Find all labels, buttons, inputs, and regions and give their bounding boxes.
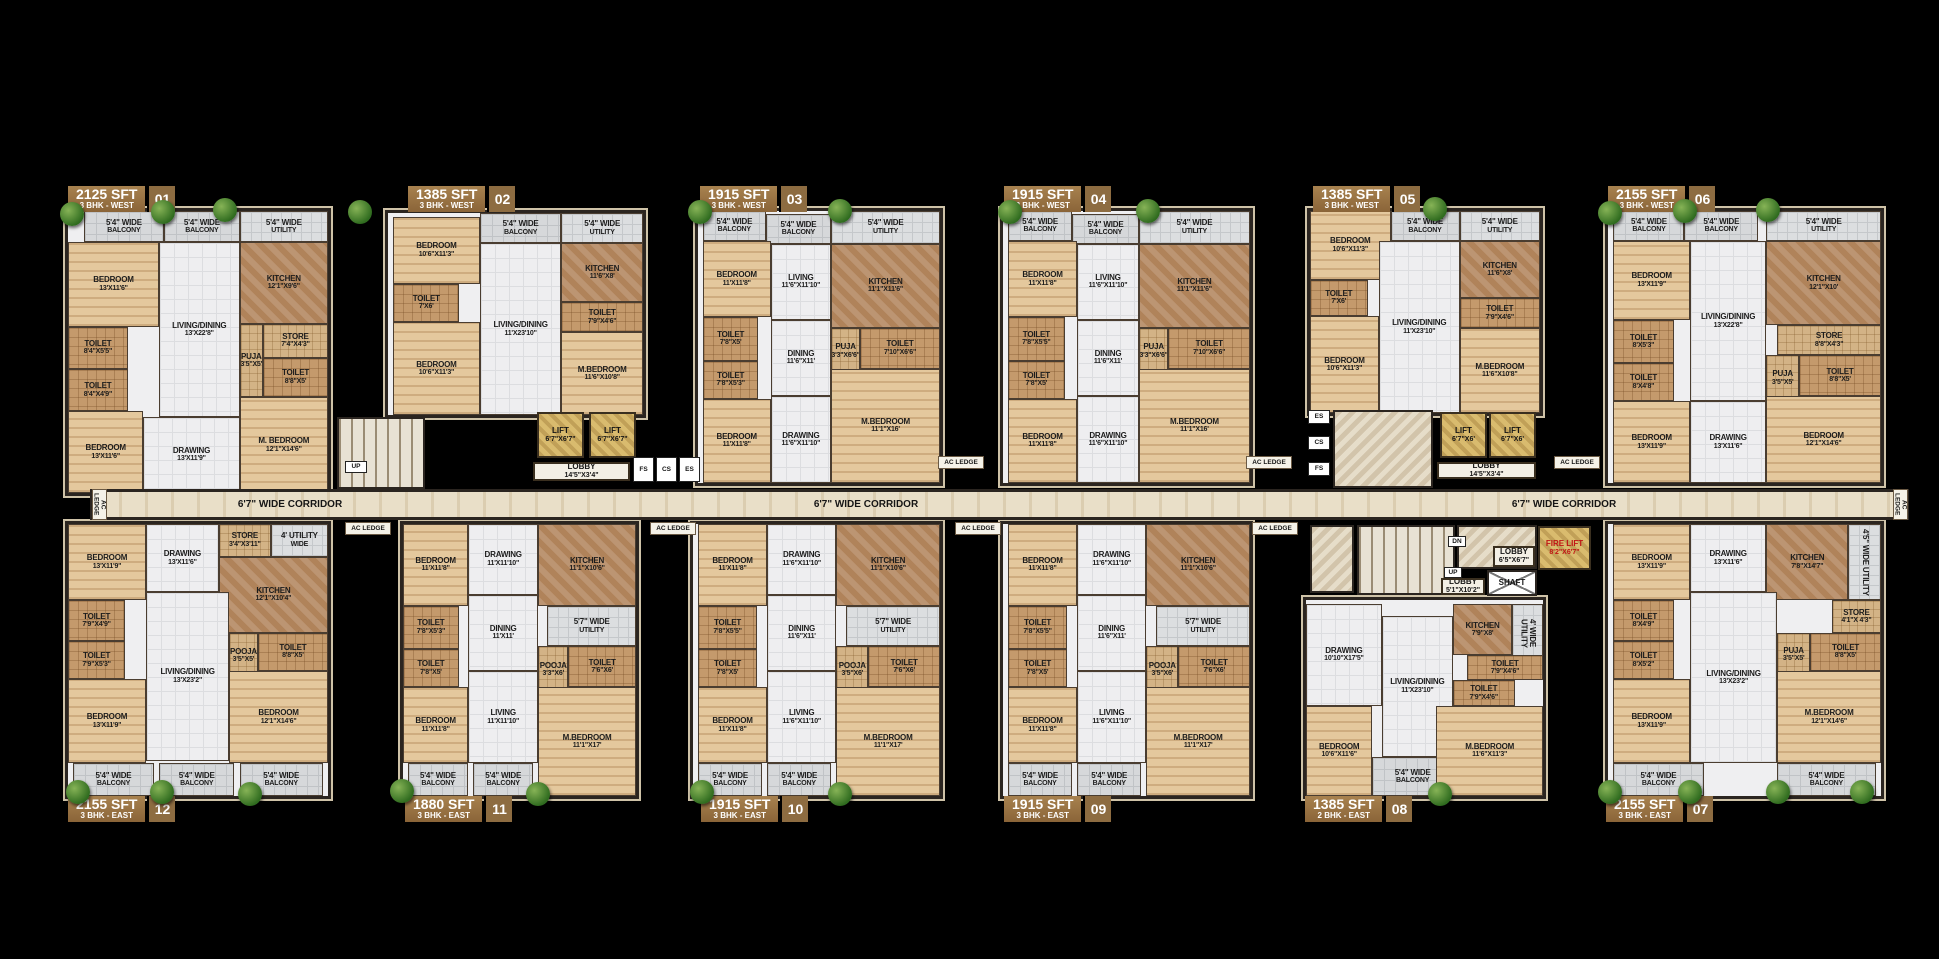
room-wood: BEDROOM13'X11'9" (1613, 679, 1689, 763)
room-dims: 7'8"X5'5" (1023, 628, 1051, 635)
room-toi: TOILET7'10"X6'6" (1168, 328, 1250, 369)
room-label: 5'4" WIDE (106, 219, 142, 227)
room-dims: BALCONY (718, 226, 751, 233)
room-label: TOILET (413, 295, 440, 303)
plant-icon (998, 200, 1022, 224)
room-label: TOILET (84, 340, 111, 348)
room-puj: POOJA3'5"X6' (836, 646, 868, 692)
room-dims: 11'X11'8" (1028, 565, 1056, 572)
up-label-text: UP (1448, 569, 1457, 576)
lobby-label: LOBBY5'1"X10'2" (1441, 578, 1485, 595)
room-utl: 5'4" WIDEUTILITY (1766, 211, 1881, 241)
room-dims: 13'X11'9" (93, 563, 122, 570)
room-wood: M.BEDROOM11'1"X17' (538, 687, 636, 796)
ac-ledge-label: AC LEDGE (1252, 522, 1298, 535)
room-wood: BEDROOM11'X11'8" (403, 687, 468, 763)
room-dims: 7'9"X5'3" (82, 661, 110, 668)
room-dims: 7'8"X5' (1026, 380, 1048, 387)
lift-text: LIFT (1504, 427, 1521, 436)
room-dims: 11'X11'10" (487, 560, 519, 567)
room-label: DRAWING (173, 447, 210, 455)
room-dims: UTILITY (1191, 627, 1216, 634)
room-dims: BALCONY (504, 229, 537, 236)
room-kit: KITCHEN7'8"X14'7" (1766, 524, 1848, 600)
room-label: 5'4" WIDE (781, 772, 817, 780)
corridor-label: 6'7" WIDE CORRIDOR (1489, 496, 1639, 512)
room-live: LIVING11'X11'10" (468, 671, 538, 763)
room-dims: 11'6"X11'10" (782, 560, 821, 567)
room-dims: BALCONY (783, 780, 816, 787)
room-dims: 11'6"X11'10" (1092, 718, 1131, 725)
room-dims: 8'X5'3" (1633, 342, 1655, 349)
room-wood: BEDROOM11'X11'8" (1008, 399, 1077, 483)
room-bal: 5'4" WIDEBALCONY (1077, 763, 1141, 796)
room-dims: 7'8"X5'3" (716, 380, 744, 387)
room-label: BEDROOM (1319, 743, 1359, 751)
room-dims: 11'X11'8" (1028, 280, 1056, 287)
room-dims: 12'1"X14'6" (1811, 718, 1847, 725)
room-toi: TOILET7'8"X5' (403, 649, 459, 687)
room-label: LIVING/DINING (493, 321, 547, 329)
room-label: 5'4" WIDE (485, 772, 521, 780)
room-label: PUJA (241, 353, 262, 361)
room-dims: 11'6"X10'8" (584, 374, 619, 381)
room-label: BEDROOM (712, 557, 752, 565)
unit-badge-main: 1385 SFT2 BHK - EAST (1305, 796, 1382, 822)
room-dims: UTILITY (1487, 227, 1512, 234)
dn-label: DN (1448, 536, 1466, 547)
room-wood: M.BEDROOM12'1"X14'6" (1777, 671, 1881, 763)
room-dims: 13'X11'6" (99, 285, 128, 292)
unit-11: BEDROOM11'X11'8"DRAWING11'X11'10"KITCHEN… (400, 521, 639, 799)
room-puj: POOJA3'5"X6' (1146, 646, 1178, 692)
plant-icon (690, 780, 714, 804)
unit-badge-09: 1915 SFT3 BHK - EAST09 (1004, 796, 1111, 822)
room-dims: 12'1"X9'6" (268, 283, 300, 290)
room-label: TOILET (417, 619, 444, 627)
room-wood: BEDROOM11'X11'8" (703, 241, 771, 317)
room-dims: UTILITY (1811, 226, 1836, 233)
room-dims: 3'3"X6'6" (831, 352, 859, 359)
unit-type-label: 3 BHK - WEST (1321, 202, 1382, 211)
plant-icon (1756, 198, 1780, 222)
room-wood: BEDROOM12'1"X14'6" (229, 671, 328, 763)
room-puj: PUJA3'5"X5' (1777, 633, 1810, 677)
room-toi: TOILET7'X6' (393, 284, 459, 322)
ac-ledge-label: AC LEDGE (1554, 456, 1600, 469)
ac-ledge-label: AC LEDGE (650, 522, 696, 535)
room-live: LIVING11'6"X11'10" (1077, 671, 1146, 763)
room-dims: 7'6"X6' (1203, 667, 1225, 674)
room-label: TOILET (891, 659, 918, 667)
plant-icon (1850, 780, 1874, 804)
room-dims: 13'X11'6" (1714, 559, 1743, 566)
plant-icon (828, 199, 852, 223)
fs-box: FS (1308, 462, 1330, 476)
room-dims: 7'9"X4'6" (1470, 694, 1498, 701)
unit-10: BEDROOM11'X11'8"DRAWING11'6"X11'10"KITCH… (690, 521, 943, 799)
room-dims: 10'6"X11'6" (1321, 751, 1356, 758)
room-dims: BALCONY (180, 780, 213, 787)
room-dims: BALCONY (1408, 227, 1441, 234)
ac-ledge-label-text: AC LEDGE (1258, 525, 1292, 532)
room-label: TOILET (1630, 334, 1657, 342)
room-dims: BALCONY (421, 780, 454, 787)
unit-area-label: 1915 SFT (1012, 187, 1073, 202)
room-dims: UTILITY (271, 227, 296, 234)
room-wood: BEDROOM10'6"X11'6" (1306, 706, 1372, 796)
room-dims: 11'X11'8" (1028, 441, 1056, 448)
room-label: 5'4" WIDE (716, 218, 752, 226)
unit-number: 04 (1083, 186, 1111, 212)
unit-type-label: 3 BHK - WEST (76, 202, 137, 211)
room-label: DINING (788, 625, 815, 633)
room-label: TOILET (1826, 368, 1853, 376)
room-dims: 11'X11'8" (718, 726, 746, 733)
lift-dims: 6'7"X6'7" (545, 436, 575, 444)
room-dims: 7'4"X4'3" (281, 341, 309, 348)
room-dims: UTILITY (873, 228, 898, 235)
room-label: 5'4" WIDE (263, 772, 299, 780)
room-dims: 13'X11'6" (1714, 443, 1743, 450)
room-label: BEDROOM (1631, 554, 1671, 562)
room-label: LIVING/DINING (1390, 678, 1444, 686)
room-dims: 11'X11'8" (422, 726, 450, 733)
lobby-floor (1333, 410, 1433, 488)
unit-area-label: 2155 SFT (1616, 187, 1677, 202)
room-label: BEDROOM (258, 709, 298, 717)
room-label: 4' WIDE UTILITY (1519, 605, 1536, 662)
room-dims: 10'10"X17'5" (1324, 655, 1364, 662)
fs-box-text: FS (639, 466, 647, 473)
room-label: BEDROOM (86, 444, 126, 452)
cs-box: CS (656, 457, 677, 482)
room-live: DINING11'6"X11' (767, 595, 836, 671)
room-label: KITCHEN (1181, 557, 1215, 565)
room-dims: BALCONY (1642, 780, 1675, 787)
room-toi: TOILET7'8"X5' (1008, 361, 1065, 399)
room-live: LIVING/DINING11'X23'10" (480, 243, 562, 415)
room-kit: KITCHEN7'9"X8' (1453, 604, 1512, 655)
room-utl: 5'7" WIDEUTILITY (547, 606, 636, 647)
room-dims: BALCONY (97, 780, 130, 787)
up-label-text: UP (351, 463, 360, 470)
room-label: TOILET (417, 660, 444, 668)
room-dims: 12'1"X10'4" (255, 595, 291, 602)
room-dims: 11'1"X17' (573, 742, 602, 749)
room-label: DINING (1098, 625, 1125, 633)
plant-icon (390, 779, 414, 803)
lobby-floor (1310, 525, 1354, 593)
unit-badge-main: 1385 SFT3 BHK - WEST (408, 186, 485, 212)
room-dims: BALCONY (1705, 226, 1738, 233)
room-label: TOILET (1832, 644, 1859, 652)
lobby-label-text: LOBBY (1500, 548, 1528, 557)
room-dims: 8'8"X4'3" (1815, 341, 1843, 348)
room-toi: TOILET7'9"X4'9" (68, 600, 125, 641)
lobby-label-text: LOBBY (1473, 462, 1501, 471)
room-dims: 11'X23'10" (1401, 687, 1433, 694)
room-kit: KITCHEN12'1"X10' (1766, 241, 1881, 325)
room-label: BEDROOM (87, 713, 127, 721)
room-label: STORE (1843, 609, 1869, 617)
room-dims: 11'X23'10" (1403, 328, 1435, 335)
room-label: 5'4" WIDE (1631, 218, 1667, 226)
room-dims: 11'6"X8' (590, 273, 615, 280)
room-dims: 7'10"X6'6" (1193, 349, 1225, 356)
room-dims: 7'X6' (419, 303, 434, 310)
ac-ledge-label-text: AC LEDGE (1893, 490, 1907, 519)
room-dims: BALCONY (1396, 777, 1429, 784)
room-utl: 4' WIDE UTILITY (1512, 604, 1543, 663)
room-dims: 11'6"X11'10" (1089, 440, 1128, 447)
room-toi: TOILET7'6"X6' (568, 646, 636, 687)
room-bal: 5'4" WIDEBALCONY (480, 213, 562, 243)
room-dims: 3'5"X5' (1783, 655, 1805, 662)
room-wood: BEDROOM11'X11'8" (703, 399, 771, 483)
room-dims: 3'5"X5' (240, 361, 262, 368)
room-label: TOILET (1630, 374, 1657, 382)
room-wood: BEDROOM11'X11'8" (403, 524, 468, 606)
room-dims: 7'8"X5' (717, 669, 739, 676)
fire-lift: FIRE LIFT8'2"X6'7" (1538, 526, 1591, 570)
room-toi: TOILET8'4"X4'9" (68, 369, 128, 411)
room-label: 5'4" WIDE (1176, 219, 1212, 227)
room-kit: KITCHEN11'1"X10'6" (1146, 524, 1250, 606)
plant-icon (60, 202, 84, 226)
room-label: BEDROOM (93, 276, 133, 284)
room-label: BEDROOM (1631, 272, 1671, 280)
room-dims: 12'1"X10' (1809, 284, 1838, 291)
lobby-label: LOBBY14'5"X3'4" (533, 462, 630, 481)
room-wood: BEDROOM11'X11'8" (1008, 241, 1077, 317)
unit-badge-main: 1915 SFT3 BHK - EAST (1004, 796, 1081, 822)
plant-icon (1678, 780, 1702, 804)
unit-number: 11 (484, 796, 512, 822)
room-dims: 7'9"X8' (1472, 630, 1494, 637)
lift-dims: 6'7"X6'7" (597, 436, 627, 444)
cs-box-text: CS (1314, 439, 1323, 446)
room-live: DRAWING11'X11'10" (468, 524, 538, 595)
room-label: TOILET (1023, 331, 1050, 339)
room-label: 5'7" WIDE (1185, 618, 1221, 626)
room-toi: TOILET8'4"X5'5" (68, 327, 128, 369)
room-dims: BALCONY (185, 227, 218, 234)
unit-type-label: 3 BHK - WEST (1616, 202, 1677, 211)
room-dims: 11'1"X17' (874, 742, 903, 749)
room-dims: 11'1"X10'6" (1180, 565, 1215, 572)
unit-badge-03: 1915 SFT3 BHK - WEST03 (700, 186, 807, 212)
room-label: TOILET (84, 382, 111, 390)
unit-area-label: 1915 SFT (1012, 797, 1073, 812)
room-dims: 11'6"X11'10" (1092, 560, 1131, 567)
room-label: TOILET (1024, 619, 1051, 627)
room-toi: TOILET7'9"X5'3" (68, 641, 125, 679)
es-box: ES (679, 457, 700, 482)
room-label: DRAWING (1093, 551, 1130, 559)
room-dims: 11'X11'8" (723, 441, 751, 448)
plant-icon (1136, 199, 1160, 223)
room-label: TOILET (589, 309, 616, 317)
room-dims: 8'X4'9" (1633, 621, 1655, 628)
room-label: DRAWING (1709, 434, 1746, 442)
room-utl: 5'4" WIDEUTILITY (561, 213, 643, 243)
room-dims: BALCONY (1089, 229, 1122, 236)
room-label: 5'4" WIDE (1091, 772, 1127, 780)
room-label: BEDROOM (1330, 237, 1370, 245)
room-puj: PUJA3'3"X6'6" (831, 328, 860, 374)
room-dims: 11'X11'8" (1028, 726, 1056, 733)
room-live: DINING11'6"X11' (1077, 320, 1139, 396)
room-sto: STORE7'4"X4'3" (263, 324, 328, 358)
room-label: STORE (232, 532, 258, 540)
unit-type-label: 3 BHK - EAST (1012, 812, 1073, 821)
lift-text: LIFT (604, 427, 621, 436)
room-dims: BALCONY (487, 780, 520, 787)
room-dims: 4'1"X 4'3" (1841, 617, 1871, 624)
room-dims: 7'8"X5' (720, 339, 742, 346)
room-dims: 13'X11'9" (1637, 443, 1666, 450)
room-dims: 13'X11'9" (1637, 563, 1666, 570)
room-bal: 5'4" WIDEBALCONY (766, 214, 831, 244)
room-bal: 5'4" WIDEBALCONY (767, 763, 831, 796)
unit-area-label: 1385 SFT (416, 187, 477, 202)
corridor-label: 6'7" WIDE CORRIDOR (791, 496, 941, 512)
staircase (337, 417, 425, 489)
room-dims: 12'1"X14'6" (1806, 440, 1842, 447)
unit-01: 5'4" WIDEBALCONY5'4" WIDEBALCONY5'4" WID… (65, 208, 331, 496)
room-label: 5'4" WIDE (1703, 218, 1739, 226)
room-dims: BALCONY (782, 229, 815, 236)
plant-icon (1423, 197, 1447, 221)
room-live: LIVING/DINING11'X23'10" (1379, 241, 1460, 413)
unit-type-label: 3 BHK - EAST (76, 812, 137, 821)
room-label: LIVING/DINING (1706, 670, 1760, 678)
room-label: TOILET (83, 652, 110, 660)
room-toi: TOILET7'6"X6' (1178, 646, 1250, 687)
room-utl: 5'4" WIDEUTILITY (1460, 211, 1541, 241)
unit-badge-02: 1385 SFT3 BHK - WEST02 (408, 186, 515, 212)
room-kit: KITCHEN11'6"X8' (561, 243, 643, 302)
room-label: LIVING/DINING (1701, 313, 1755, 321)
room-label: 5'4" WIDE (1808, 772, 1844, 780)
room-wood: BEDROOM13'X11'9" (68, 679, 146, 763)
room-wood: M.BEDROOM11'6"X11'3" (1436, 706, 1543, 796)
room-label: M.BEDROOM (1174, 734, 1223, 742)
room-live: DRAWING13'X11'9" (143, 417, 239, 493)
room-label: TOILET (83, 613, 110, 621)
corridor-label-text: 6'7" WIDE CORRIDOR (1512, 499, 1616, 510)
room-dims: BALCONY (1093, 780, 1126, 787)
room-label: KITCHEN (871, 557, 905, 565)
unit-type-label: 3 BHK - EAST (709, 812, 770, 821)
room-label: DRAWING (485, 551, 522, 559)
lobby-label-dims: 5'1"X10'2" (1446, 587, 1480, 595)
room-dims: 11'6"X10'8" (1482, 371, 1517, 378)
room-wood: M.BEDROOM11'1"X16' (831, 369, 940, 483)
room-live: DRAWING13'X11'6" (1690, 524, 1766, 592)
room-label: M.BEDROOM (1805, 709, 1854, 717)
room-label: POOJA (540, 662, 567, 670)
room-kit: KITCHEN11'6"X8' (1460, 241, 1541, 298)
room-label: KITCHEN (256, 587, 290, 595)
room-label: BEDROOM (1631, 713, 1671, 721)
room-dims: UTILITY (579, 627, 604, 634)
room-dims: BALCONY (107, 227, 140, 234)
room-label: KITCHEN (868, 278, 902, 286)
room-label: LIVING/DINING (160, 668, 214, 676)
lift-dims: 6'7"X6' (1501, 436, 1524, 444)
room-toi: TOILET8'8"X5' (1810, 633, 1881, 671)
room-dims: 13'X11'9" (177, 455, 206, 462)
room-label: STORE (1816, 332, 1842, 340)
room-label: KITCHEN (1790, 554, 1824, 562)
room-label: TOILET (279, 644, 306, 652)
room-live: DRAWING11'6"X11'10" (771, 396, 832, 483)
room-toi: TOILET7'6"X6' (868, 646, 940, 687)
unit-type-label: 3 BHK - EAST (1614, 812, 1675, 821)
fs-box: FS (633, 457, 654, 482)
room-label: 5'4" WIDE (266, 219, 302, 227)
room-label: TOILET (1492, 660, 1519, 668)
room-label: LIVING (789, 709, 814, 717)
room-label: 5'4" WIDE (1482, 218, 1518, 226)
room-label: KITCHEN (570, 557, 604, 565)
plant-icon (828, 782, 852, 806)
room-dims: 11'X11'8" (723, 280, 751, 287)
room-label: 4' UTILITY (281, 532, 318, 540)
room-dims: 11'6"X11'10" (781, 282, 820, 289)
plant-icon (1598, 780, 1622, 804)
room-label: POOJA (1149, 662, 1176, 670)
unit-number: 05 (1392, 186, 1420, 212)
room-puj: POOJA3'3"X6' (538, 646, 568, 692)
room-label: TOILET (589, 659, 616, 667)
room-live: DRAWING10'10"X17'5" (1306, 604, 1382, 706)
unit-number: 10 (780, 796, 808, 822)
room-toi: TOILET7'8"X5'5" (1008, 317, 1065, 361)
corridor-label: 6'7" WIDE CORRIDOR (215, 496, 365, 512)
room-wood: BEDROOM11'X11'8" (1008, 687, 1077, 763)
room-label: BEDROOM (1022, 271, 1062, 279)
room-dims: 7'9"X4'9" (82, 621, 110, 628)
room-label: PUJA (1143, 343, 1164, 351)
unit-badge-main: 1385 SFT3 BHK - WEST (1313, 186, 1390, 212)
room-label: PUJA (835, 343, 856, 351)
room-label: M.BEDROOM (1465, 743, 1514, 751)
lift: LIFT6'7"X6'7" (537, 412, 584, 458)
plant-icon (688, 200, 712, 224)
room-dims: 13'X11'6" (91, 453, 120, 460)
room-dims: 3'5"X5' (1772, 379, 1794, 386)
room-dims: 7'8"X5'3" (417, 628, 445, 635)
room-kit: KITCHEN11'1"X11'6" (1139, 244, 1250, 328)
room-dims: 12'1"X14'6" (261, 718, 297, 725)
lobby-label-text: LOBBY (568, 463, 596, 472)
room-toi: TOILET8'X5'2" (1613, 641, 1673, 679)
room-label: TOILET (887, 340, 914, 348)
room-wood: M.BEDROOM11'1"X17' (1146, 687, 1250, 796)
room-label: BEDROOM (415, 557, 455, 565)
room-toi: TOILET7'9"X4'6" (561, 302, 643, 332)
room-dims: 12'1"X14'6" (266, 446, 302, 453)
room-puj: PUJA3'5"X5' (1766, 355, 1799, 401)
room-label: DRAWING (783, 551, 820, 559)
unit-type-label: 3 BHK - WEST (708, 202, 769, 211)
room-dims: 10'6"X11'3" (419, 251, 454, 258)
room-label: TOILET (1023, 372, 1050, 380)
room-label: DRAWING (782, 432, 819, 440)
